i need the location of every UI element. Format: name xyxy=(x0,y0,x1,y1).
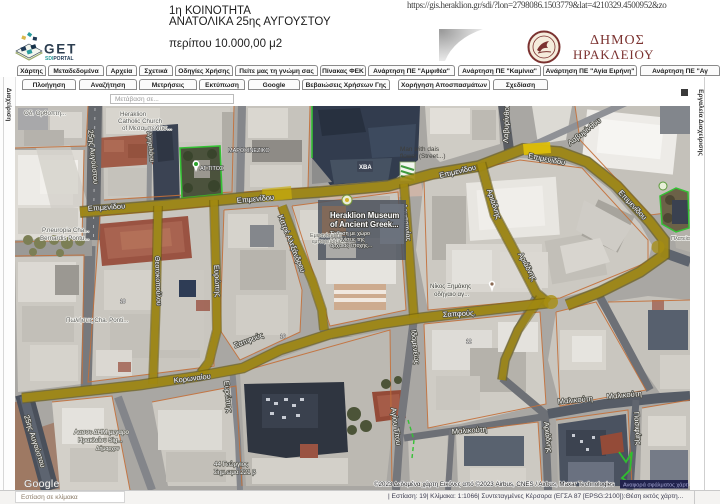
svg-text:Σημ.ωμα 221 β: Σημ.ωμα 221 β xyxy=(214,469,256,476)
svg-text:16: 16 xyxy=(280,334,286,340)
svg-text:Πωλήσεις Cha. Ponti...: Πωλήσεις Cha. Ponti... xyxy=(66,317,129,324)
svg-text:Σαπφούς.: Σαπφούς. xyxy=(443,308,476,319)
svg-text:Αναφορά σφάλματος χάρτη: Αναφορά σφάλματος χάρτη xyxy=(623,482,690,489)
svg-text:©2023 Δεδομένα χάρτη Εικόνες α: ©2023 Δεδομένα χάρτη Εικόνες από ©2023 A… xyxy=(374,481,614,488)
svg-text:Νίκος Ξημάκης: Νίκος Ξημάκης xyxy=(430,283,471,290)
svg-text:18: 18 xyxy=(120,299,126,305)
svg-text:SDIPORTAL: SDIPORTAL xyxy=(45,56,74,62)
svg-text:GET: GET xyxy=(44,42,77,57)
svg-text:of Μεσαμπελίτισ...: of Μεσαμπελίτισ... xyxy=(122,125,172,132)
svg-text:ΧΒΑ: ΧΒΑ xyxy=(359,165,372,171)
svg-text:Heraklion Museum: Heraklion Museum xyxy=(330,211,399,220)
svg-text:Δήμαρχον: Δήμαρχον xyxy=(96,445,120,452)
svg-text:44 Γεώργιος: 44 Γεώργιος xyxy=(214,461,248,468)
svg-text:Heraklion: Heraklion xyxy=(120,111,147,118)
svg-text:Οδ. Ορθοπτη...: Οδ. Ορθοπτη... xyxy=(24,110,66,117)
svg-text:Λασσε ΔΗΜ.μεγαρο: Λασσε ΔΗΜ.μεγαρο xyxy=(74,429,129,436)
svg-text:ΑΓ.ΤΙΤΟΣ: ΑΓ.ΤΙΤΟΣ xyxy=(200,166,224,172)
svg-text:Λαβυρίνθου: Λαβυρίνθου xyxy=(501,106,511,143)
svg-text:Ηρακλείου Sig...: Ηρακλείου Sig... xyxy=(78,437,123,444)
svg-text:Bernardis Pontu...: Bernardis Pontu... xyxy=(40,235,90,242)
svg-text:12: 12 xyxy=(466,339,472,345)
svg-text:Man with dais: Man with dais xyxy=(400,146,439,153)
svg-text:ΜΑΡΟΚΙΝΕΖΙΚΟ: ΜΑΡΟΚΙΝΕΖΙΚΟ xyxy=(228,148,270,154)
svg-text:flower (Street...): flower (Street...) xyxy=(400,153,445,160)
svg-text:P.neuropia Cha...: P.neuropia Cha... xyxy=(42,227,90,234)
svg-text:Catholic Church: Catholic Church xyxy=(118,118,163,125)
svg-text:Πλατεία: Πλατεία xyxy=(671,236,690,242)
svg-text:Ευρώπης: Ευρώπης xyxy=(212,265,223,298)
svg-text:οδήγαιο αγ...: οδήγαιο αγ... xyxy=(434,291,470,298)
svg-text:εμπορευόμε...: εμπορευόμε... xyxy=(312,238,346,245)
svg-text:of Ancient Greek...: of Ancient Greek... xyxy=(330,220,399,229)
svg-text:Google: Google xyxy=(24,478,60,490)
